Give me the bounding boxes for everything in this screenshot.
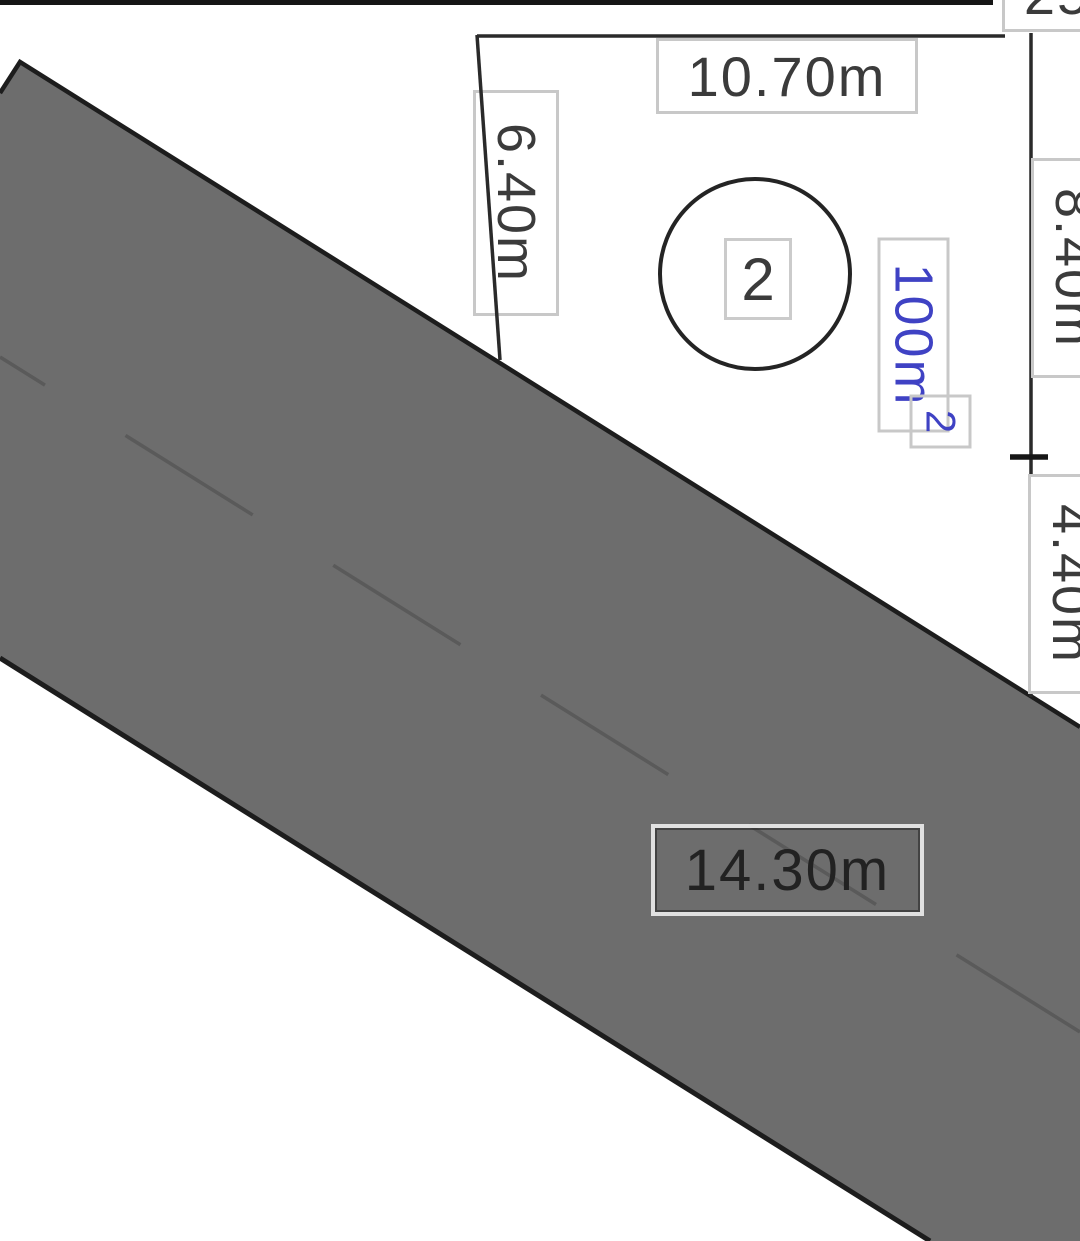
road-centerline bbox=[0, 357, 1080, 1032]
area-label-exponent: 2 bbox=[917, 410, 965, 433]
area-label: 100m 2 bbox=[878, 238, 950, 433]
dimension-label-top-right-text: 25 bbox=[1024, 0, 1080, 27]
dimension-label-road-text: 14.30m bbox=[685, 837, 890, 904]
area-label-exponent-box: 2 bbox=[910, 395, 972, 449]
plot-number: 2 bbox=[741, 245, 774, 314]
dimension-label-top-right-partial: 25 bbox=[1002, 0, 1080, 32]
dimension-label-road: 14.30m bbox=[655, 828, 920, 912]
dimension-label-right-upper: 8.40m bbox=[1031, 158, 1080, 378]
dimension-label-right-lower-text: 4.40m bbox=[1040, 504, 1080, 664]
dimension-label-right-lower: 4.40m bbox=[1028, 474, 1080, 694]
plot-plan-canvas: 10.70m 25 6.40m 8.40m 4.40m 2 100m 2 14.… bbox=[0, 0, 1080, 1241]
dimension-label-top: 10.70m bbox=[656, 38, 918, 114]
plot-number-box: 2 bbox=[724, 238, 792, 320]
top-boundary-line bbox=[0, 0, 993, 5]
area-label-value: 100m bbox=[883, 263, 945, 406]
dimension-label-right-upper-text: 8.40m bbox=[1043, 188, 1080, 348]
dimension-label-left-text: 6.40m bbox=[485, 123, 547, 283]
dimension-label-top-text: 10.70m bbox=[688, 44, 887, 109]
plot-number-circle: 2 bbox=[658, 177, 852, 371]
dimension-label-left: 6.40m bbox=[473, 90, 559, 316]
road-lower-edge bbox=[0, 658, 930, 1241]
